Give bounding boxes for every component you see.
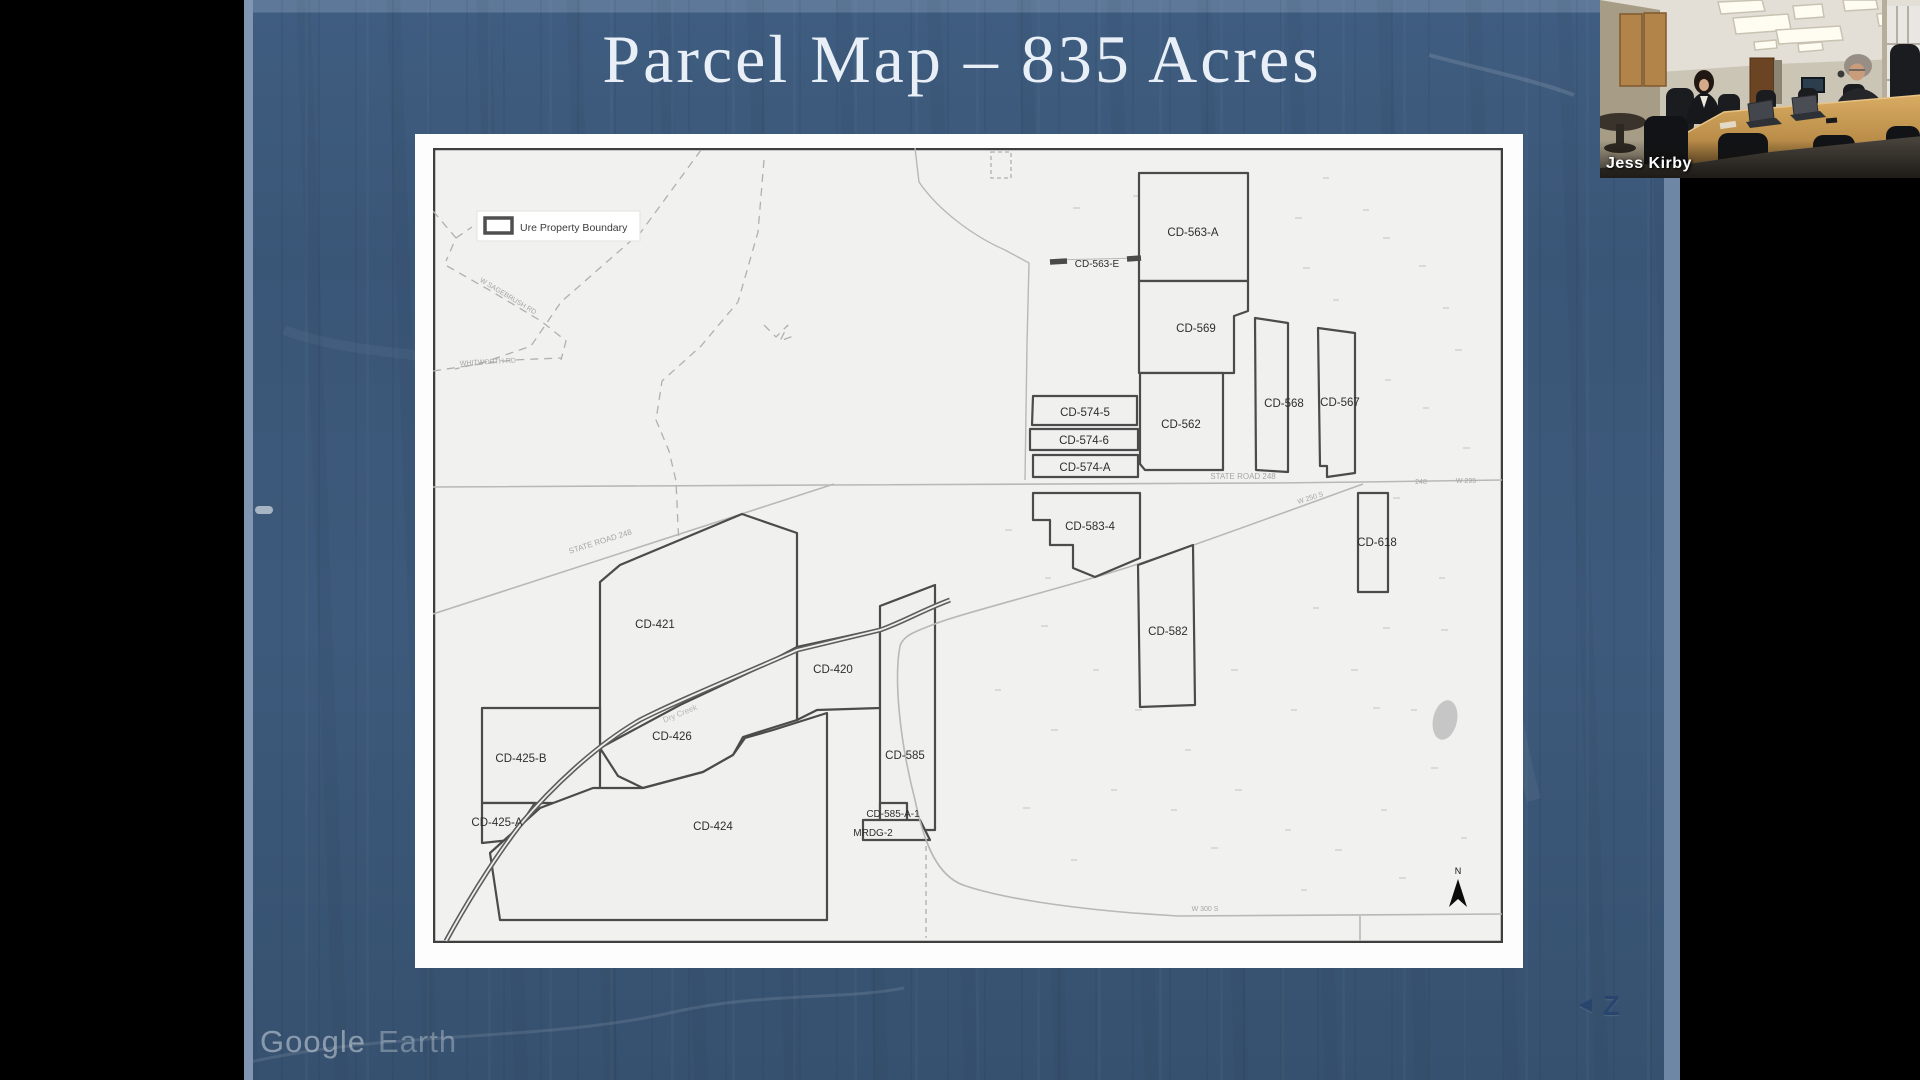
map-legend: Ure Property Boundary: [477, 211, 640, 241]
participant-name-label: Jess Kirby: [1606, 155, 1692, 173]
parcel-label: CD-568: [1264, 398, 1304, 410]
phone: [1826, 117, 1837, 123]
parcel-label: CD-563-E: [1075, 259, 1120, 270]
parcel-label: CD-426: [652, 731, 692, 743]
person-right-face: [1849, 64, 1865, 81]
zoom-z-logo: Z: [1603, 990, 1621, 1021]
wall-clock: [1838, 71, 1845, 78]
webcam-video-tile[interactable]: Jess Kirby: [1600, 0, 1920, 178]
north-label: N: [1455, 866, 1462, 876]
road-label: W 300 S: [1192, 906, 1219, 913]
parcel-label: CD-425-B: [495, 753, 546, 765]
parcel-label: CD-569: [1176, 323, 1216, 335]
google-earth-watermark-google: Google: [260, 1024, 366, 1059]
parcel-label: CD-574-A: [1059, 462, 1110, 474]
parcel-shape: [880, 585, 935, 830]
viewport-edge-left: [244, 0, 253, 1080]
parcel-label: CD-583-4: [1065, 521, 1115, 533]
person-left-face: [1699, 79, 1709, 91]
google-earth-watermark: GoogleEarth: [260, 1024, 457, 1060]
screen: { "slide": { "title": "Parcel Map – 835 …: [0, 0, 1920, 1080]
zoom-arrow-icon: ◄: [1574, 991, 1597, 1017]
zoom-watermark: ◄Z: [1574, 990, 1621, 1022]
legend-boundary-symbol: [485, 218, 512, 233]
road-label: 248: [1415, 479, 1427, 486]
webcam-scene: [1600, 0, 1920, 178]
parcel-label: CD-421: [635, 619, 675, 631]
legend-label: Ure Property Boundary: [520, 222, 628, 234]
map-marker: [255, 506, 273, 514]
parcel-map: STATE ROAD 248 STATE ROAD 248 248 W 295 …: [433, 148, 1503, 943]
google-earth-viewport: Parcel Map – 835 Acres: [244, 0, 1680, 1080]
road-end-marker: [1050, 261, 1067, 262]
slide-title: Parcel Map – 835 Acres: [244, 20, 1680, 99]
parcel-label: CD-618: [1357, 537, 1397, 549]
parcel-label: MRDG-2: [853, 828, 893, 839]
parcel-label: CD-574-5: [1060, 407, 1110, 419]
parcel-label: CD-574-6: [1059, 435, 1109, 447]
road-label: W 295: [1456, 478, 1476, 485]
parcel-shape: [1255, 318, 1288, 472]
parcel-label: CD-425-A: [471, 817, 522, 829]
parcel-label: CD-562: [1161, 419, 1201, 431]
parcel-label: CD-582: [1148, 626, 1188, 638]
road-end-marker: [1127, 258, 1141, 259]
parcel-label: CD-424: [693, 821, 733, 833]
road-label: STATE ROAD 248: [1210, 472, 1276, 481]
google-earth-watermark-earth: Earth: [378, 1024, 457, 1059]
parcel-map-page: STATE ROAD 248 STATE ROAD 248 248 W 295 …: [415, 134, 1523, 968]
parcel-label: CD-585: [885, 750, 925, 762]
parcel-label: CD-567: [1320, 397, 1360, 409]
parcel-label: CD-585-A-1: [866, 809, 920, 820]
parcel-label: CD-420: [813, 664, 853, 676]
parcel-label: CD-563-A: [1167, 227, 1218, 239]
